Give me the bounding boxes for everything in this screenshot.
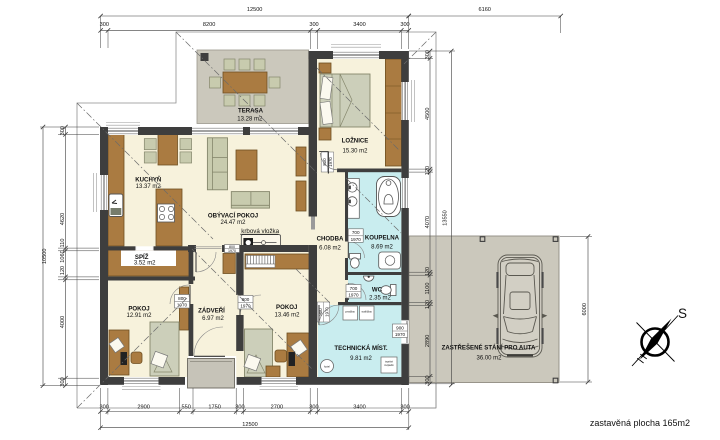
svg-text:700: 700 [352,230,360,235]
svg-text:2.35 m2: 2.35 m2 [369,296,391,302]
svg-text:OBÝVACÍ POKOJ: OBÝVACÍ POKOJ [208,212,258,220]
svg-text:4070: 4070 [425,216,431,228]
svg-text:LOŽNICE: LOŽNICE [342,137,369,145]
svg-text:120: 120 [60,266,66,275]
svg-text:24.47 m2: 24.47 m2 [220,220,246,226]
svg-text:12500: 12500 [242,422,258,428]
svg-text:ZÁDVEŘÍ: ZÁDVEŘÍ [198,306,225,314]
svg-text:110: 110 [60,239,66,248]
svg-text:sušička: sušička [361,310,371,314]
svg-text:1970: 1970 [395,332,406,337]
svg-text:300: 300 [425,375,431,384]
svg-text:POKOJ: POKOJ [276,304,297,311]
svg-text:550: 550 [182,405,191,411]
svg-text:pračka: pračka [345,310,354,314]
svg-text:3.52 m2: 3.52 m2 [134,260,156,266]
svg-text:120: 120 [425,166,431,175]
svg-text:4620: 4620 [60,213,66,225]
svg-text:1970: 1970 [228,249,236,253]
svg-text:13.37 m2: 13.37 m2 [136,184,162,190]
svg-text:POKOJ: POKOJ [128,305,149,312]
svg-text:1970: 1970 [348,293,359,298]
svg-text:KOUPELNA: KOUPELNA [365,235,400,242]
svg-text:čerpadlo: čerpadlo [384,364,394,367]
svg-text:zastavěná plocha 165m2: zastavěná plocha 165m2 [590,418,690,428]
svg-text:300: 300 [60,126,66,135]
svg-text:1060: 1060 [60,250,66,262]
svg-text:2900: 2900 [137,405,149,411]
svg-text:2700: 2700 [271,405,283,411]
svg-text:1750: 1750 [208,405,220,411]
svg-text:12.91 m2: 12.91 m2 [126,313,152,319]
svg-text:8200: 8200 [203,22,215,28]
svg-text:800: 800 [322,158,327,166]
svg-text:36.00 m2: 36.00 m2 [476,356,502,362]
svg-text:WC: WC [372,287,383,294]
svg-text:4500: 4500 [425,108,431,120]
svg-text:TERASA: TERASA [238,108,264,115]
svg-text:12500: 12500 [247,7,263,13]
svg-text:6.97 m2: 6.97 m2 [202,316,224,322]
svg-text:TECHNICKÁ MÍST.: TECHNICKÁ MÍST. [334,344,387,352]
svg-text:6160: 6160 [478,7,490,13]
svg-text:9.81 m2: 9.81 m2 [350,356,372,362]
svg-text:kotel: kotel [324,365,330,369]
svg-text:300: 300 [100,405,109,411]
svg-text:1970: 1970 [351,237,362,242]
svg-text:KUCHYŇ: KUCHYŇ [135,176,161,184]
svg-text:120: 120 [425,267,431,276]
svg-text:3400: 3400 [353,22,365,28]
svg-text:300: 300 [400,22,409,28]
svg-text:1970: 1970 [177,303,188,308]
svg-text:ZASTŘEŠENÉ STÁNÍ PRO AUTA: ZASTŘEŠENÉ STÁNÍ PRO AUTA [442,344,536,352]
svg-text:8.69 m2: 8.69 m2 [371,245,393,251]
svg-text:15.30 m2: 15.30 m2 [342,149,368,155]
svg-text:700: 700 [350,286,358,291]
svg-text:3400: 3400 [353,405,365,411]
svg-text:300: 300 [425,50,431,59]
svg-text:300: 300 [60,377,66,386]
svg-text:13.28 m2: 13.28 m2 [237,117,263,123]
svg-text:300: 300 [235,405,244,411]
svg-text:6000: 6000 [582,303,588,315]
svg-text:300: 300 [400,405,409,411]
svg-text:S: S [678,306,687,321]
svg-text:CHODBA: CHODBA [317,236,344,243]
svg-text:300: 300 [309,22,318,28]
svg-text:900: 900 [396,325,404,330]
svg-text:4000: 4000 [60,316,66,328]
svg-text:300: 300 [309,405,318,411]
svg-text:10500: 10500 [42,249,48,265]
svg-text:13550: 13550 [443,210,449,226]
svg-text:300: 300 [100,22,109,28]
svg-text:2890: 2890 [425,335,431,347]
svg-text:13.46 m2: 13.46 m2 [274,313,300,319]
svg-text:120: 120 [425,300,431,309]
svg-text:1970: 1970 [328,157,333,167]
svg-text:1100: 1100 [425,282,431,294]
svg-text:6.08 m2: 6.08 m2 [319,246,341,252]
